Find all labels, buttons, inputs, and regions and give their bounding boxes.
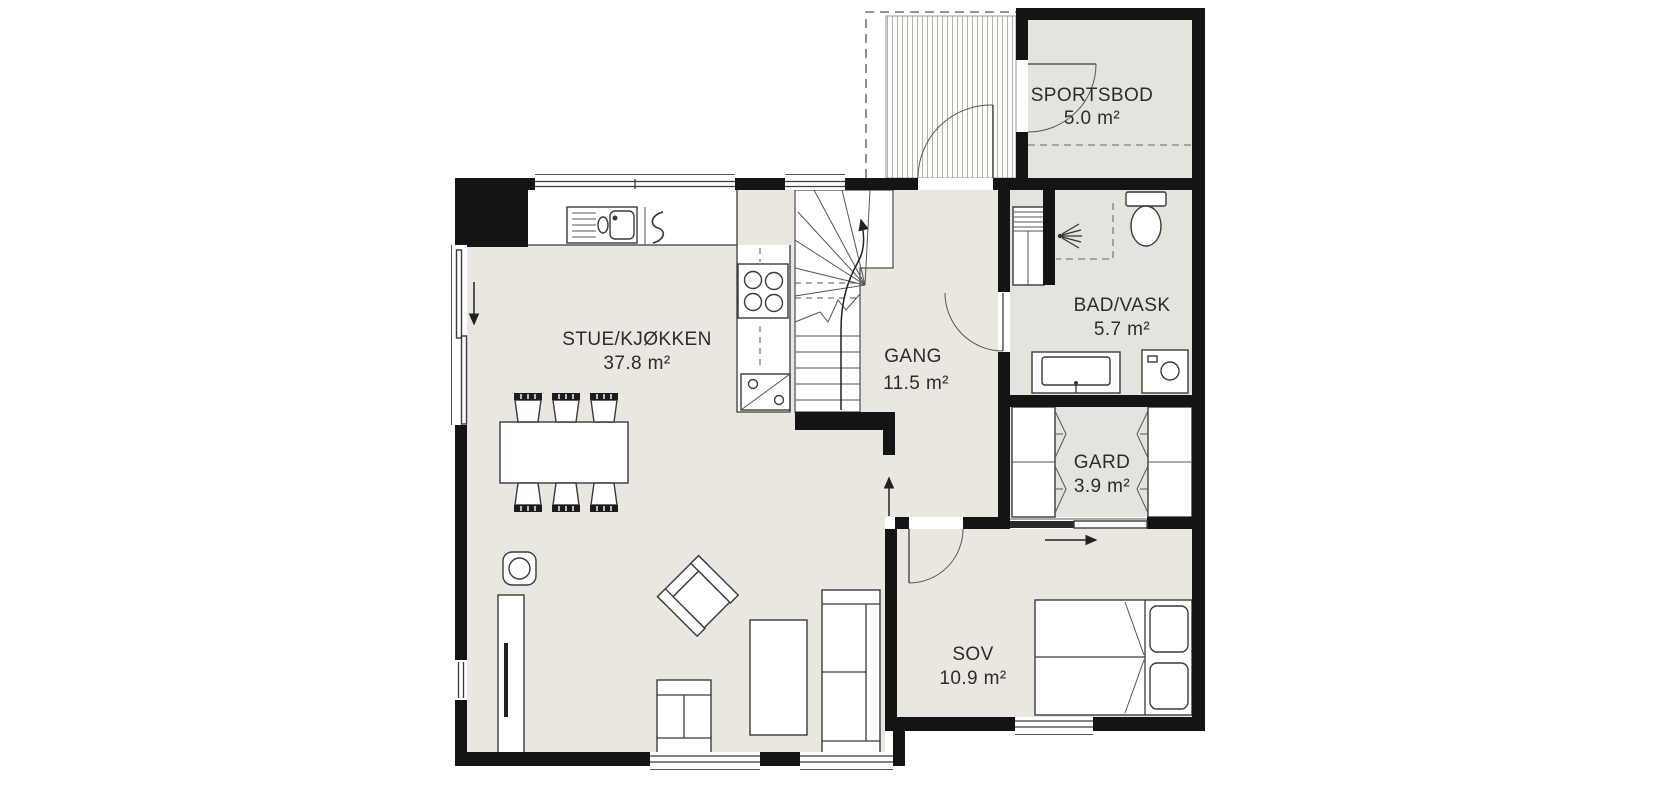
kitchen-sink-icon <box>567 207 637 243</box>
wall-kitchen-pier <box>467 190 528 247</box>
wall-top <box>993 178 1016 190</box>
wall-bottom <box>760 752 800 766</box>
wall-sportsbod-left <box>1016 132 1028 178</box>
wall-sov-bottom <box>1093 717 1205 731</box>
wall-gang-bad <box>998 190 1010 292</box>
porch-hatch <box>886 16 1016 178</box>
wall-sportsbod-top <box>1016 8 1205 20</box>
window-bottom-1 <box>650 752 760 770</box>
room-label-sportsbod: SPORTSBOD <box>1031 85 1154 106</box>
wall-left <box>455 178 467 245</box>
wall-sov-top <box>895 517 909 529</box>
dining-chair <box>514 393 542 422</box>
dining-chair <box>590 483 618 512</box>
room-label-gard: GARD <box>1074 452 1131 473</box>
dining-chair <box>552 483 580 512</box>
room-label-stue-kjokken: STUE/KJØKKEN <box>562 329 711 350</box>
wall-sov-top <box>963 517 1010 529</box>
side-chair <box>657 680 711 754</box>
room-area-bad-vask: 5.7 m² <box>1094 319 1150 340</box>
dining-chairs-bottom <box>514 483 618 512</box>
kitchen-counter-leg <box>737 245 790 412</box>
wall-top <box>1016 178 1205 190</box>
sofa <box>822 590 880 755</box>
dining-chairs-top <box>514 393 618 422</box>
wall-stair-bottom <box>795 412 895 430</box>
dining-chair <box>590 393 618 422</box>
wood-stove-icon <box>503 552 536 585</box>
dining-chair <box>552 393 580 422</box>
wall-sov-top <box>1147 517 1205 529</box>
wall-bottom <box>455 752 650 766</box>
coffee-table <box>750 620 807 735</box>
vanity-sink-icon <box>1032 352 1120 393</box>
room-label-bad-vask: BAD/VASK <box>1074 295 1171 316</box>
window-bottom-2 <box>800 752 893 770</box>
room-area-sov: 10.9 m² <box>939 668 1006 689</box>
wall-gang-bad <box>998 352 1010 517</box>
window-left-small <box>455 660 467 700</box>
window-stair <box>785 175 845 191</box>
wall-passage-stub <box>883 430 895 455</box>
room-area-gard: 3.9 m² <box>1074 476 1130 497</box>
wall-left <box>455 425 467 660</box>
double-bed <box>1035 600 1192 715</box>
wall-sov-left <box>885 529 897 717</box>
wall-sov-bottom <box>885 717 1015 731</box>
wall-top <box>845 178 918 190</box>
dining-chair <box>514 483 542 512</box>
room-area-stue-kjokken: 37.8 m² <box>603 353 670 374</box>
room-area-sportsbod: 5.0 m² <box>1064 108 1120 129</box>
wall-top <box>735 178 785 190</box>
washing-machine-icon <box>1142 350 1188 393</box>
tv-bench <box>498 595 524 755</box>
tv-icon <box>504 643 508 717</box>
window-kitchen <box>535 175 735 191</box>
room-label-sov: SOV <box>952 644 993 665</box>
window-sov <box>1015 717 1093 735</box>
floor-plan-page: SPORTSBOD 5.0 m² STUE/KJØKKEN 37.8 m² GA… <box>0 0 1670 800</box>
wall-right <box>1192 8 1205 731</box>
floor-plan: SPORTSBOD 5.0 m² STUE/KJØKKEN 37.8 m² GA… <box>0 0 1670 800</box>
wall-sportsbod-left <box>1016 8 1028 60</box>
wall-bad-gard <box>1010 395 1205 407</box>
wall-shower-stub <box>1043 190 1055 285</box>
room-area-gang: 11.5 m² <box>883 373 949 394</box>
room-label-gang: GANG <box>884 346 942 367</box>
dining-table <box>500 422 628 483</box>
tech-cabinet <box>1013 207 1044 285</box>
